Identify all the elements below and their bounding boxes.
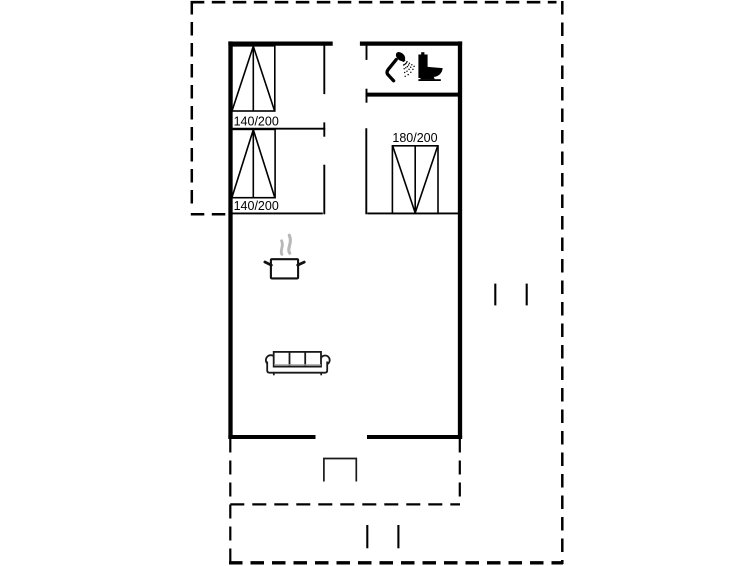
svg-text:140/200: 140/200 xyxy=(234,199,279,213)
svg-text:140/200: 140/200 xyxy=(234,114,279,128)
svg-text:180/200: 180/200 xyxy=(392,131,437,145)
